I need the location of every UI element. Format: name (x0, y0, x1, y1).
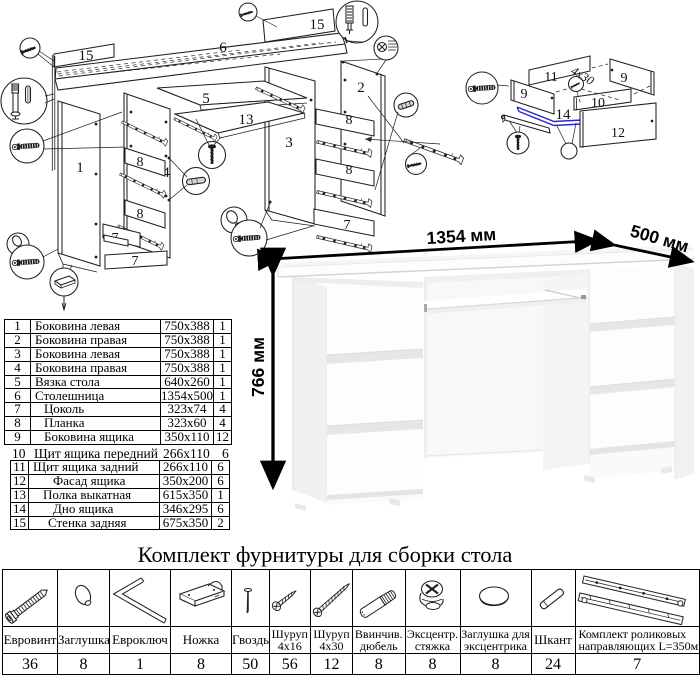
svg-text:5: 5 (202, 91, 210, 107)
svg-text:2: 2 (357, 80, 365, 96)
svg-text:11: 11 (544, 70, 557, 85)
svg-text:8: 8 (137, 155, 144, 170)
svg-text:8: 8 (346, 113, 353, 128)
svg-text:12: 12 (611, 126, 625, 141)
svg-text:3: 3 (285, 135, 293, 151)
svg-text:14: 14 (556, 107, 572, 123)
svg-text:1: 1 (76, 160, 84, 176)
svg-text:9: 9 (521, 87, 528, 102)
svg-text:9: 9 (621, 71, 628, 86)
svg-text:1354 мм: 1354 мм (426, 224, 497, 248)
svg-text:7: 7 (344, 218, 351, 233)
svg-text:15: 15 (310, 17, 325, 33)
svg-text:13: 13 (239, 112, 254, 128)
svg-text:766 мм: 766 мм (248, 337, 268, 397)
svg-text:8: 8 (137, 207, 144, 222)
svg-text:7: 7 (132, 254, 139, 269)
svg-text:15: 15 (79, 48, 94, 64)
svg-text:8: 8 (346, 163, 353, 178)
svg-text:6: 6 (219, 40, 227, 56)
